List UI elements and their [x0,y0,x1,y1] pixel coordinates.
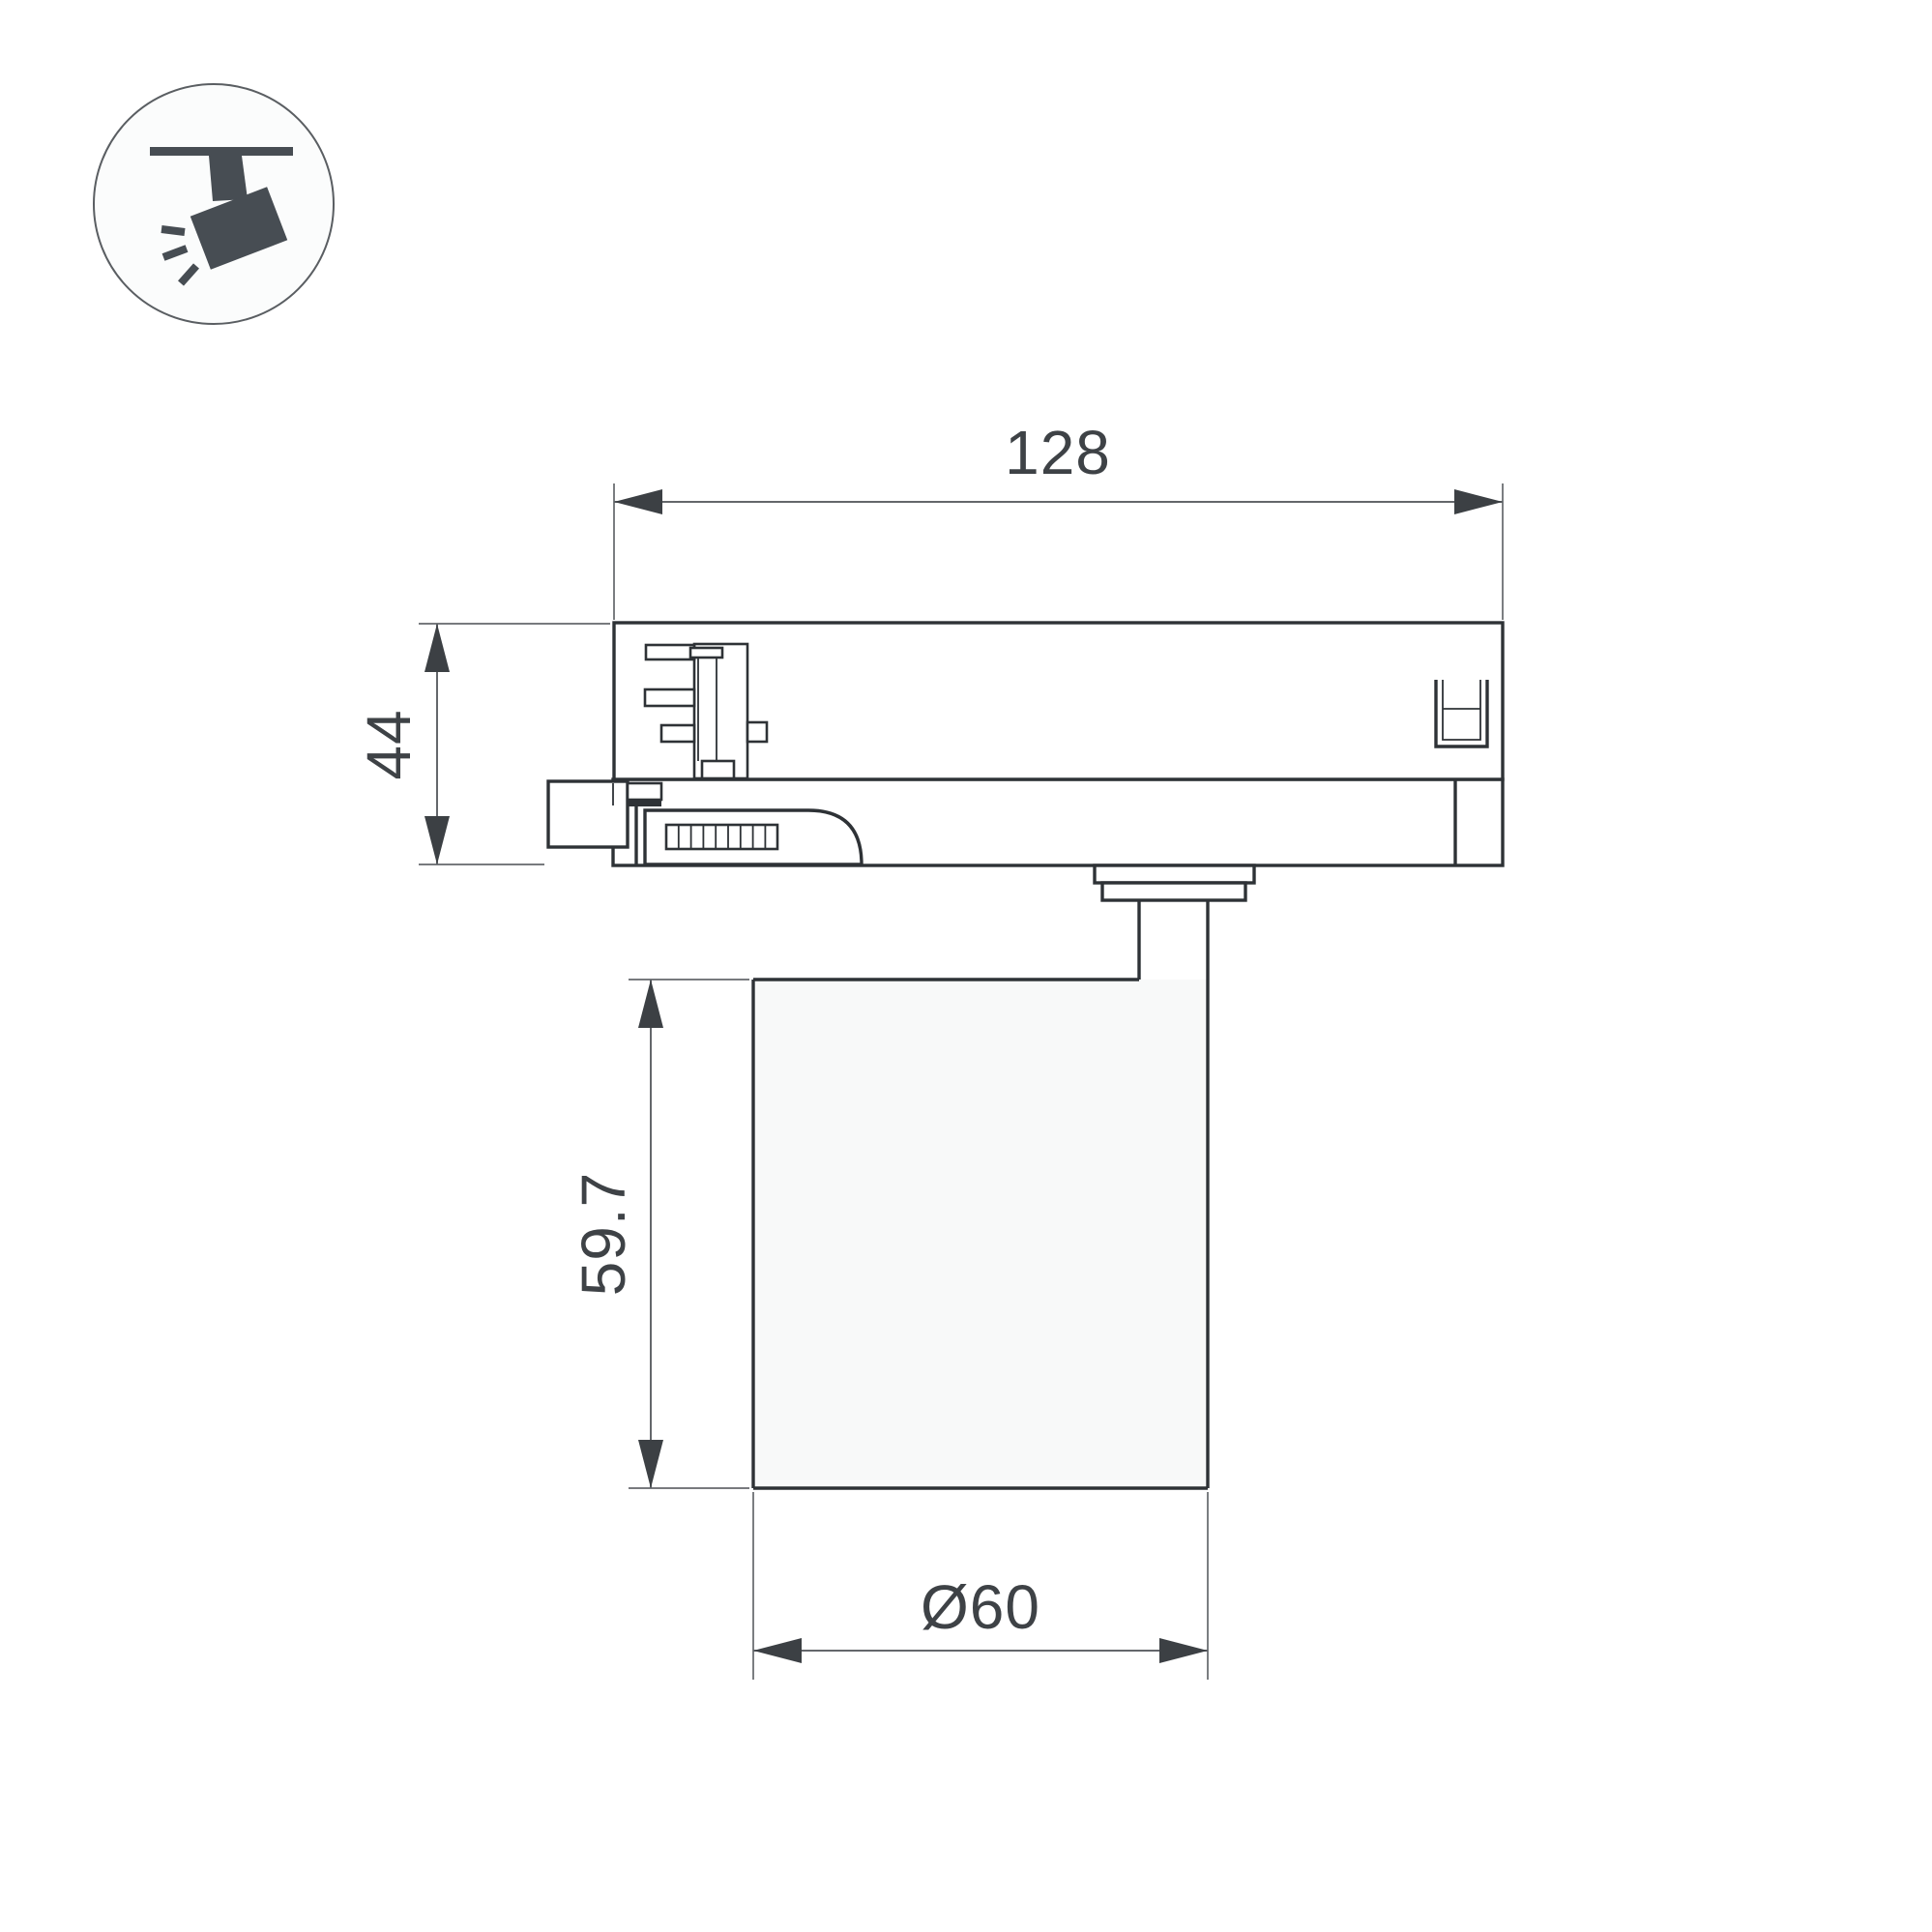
contact-pin-cap [690,648,722,658]
contact-prong-middle [645,689,694,706]
dimension-track-width: 128 [614,418,1503,620]
contact-prong-bottom [661,725,694,742]
arrowhead-bottom [424,816,450,864]
contact-nub-right [747,722,767,742]
dimension-label-adapter-height: 44 [354,709,424,779]
arrowhead-right [1159,1638,1208,1663]
arrowhead-top [638,980,663,1028]
track-spotlight-icon [94,84,334,324]
icon-light-ray [161,229,185,232]
dimension-label-track-width: 128 [1005,418,1111,487]
arrowhead-top [424,624,450,672]
arrowhead-left [753,1638,802,1663]
latch-block [548,781,628,847]
contact-carrier [694,644,747,778]
arrowhead-left [614,489,662,514]
latch-dark-bar [628,801,661,806]
arrowhead-bottom [638,1440,663,1488]
pivot-plate-upper [1095,865,1254,883]
technical-drawing: 128 44 59.7 Ø60 [0,0,1932,1932]
dimension-label-body-height: 59.7 [569,1172,638,1297]
contact-pin-foot [702,761,734,778]
icon-track-bar [150,147,293,156]
dimension-body-diameter: Ø60 [753,1492,1208,1680]
contact-prong-top [646,645,694,659]
rib-block [666,825,777,849]
icon-circle [94,84,334,324]
arrowhead-right [1454,489,1503,514]
lamp-body-fill [753,980,1208,1488]
pivot-plate-lower [1102,883,1245,900]
icon-stem [209,156,248,201]
drawing-canvas: 128 44 59.7 Ø60 [0,0,1932,1932]
latch-detail [628,783,661,800]
luminaire-outline [548,623,1503,1488]
dimension-label-body-diameter: Ø60 [921,1572,1040,1642]
dimension-body-height: 59.7 [569,980,749,1488]
